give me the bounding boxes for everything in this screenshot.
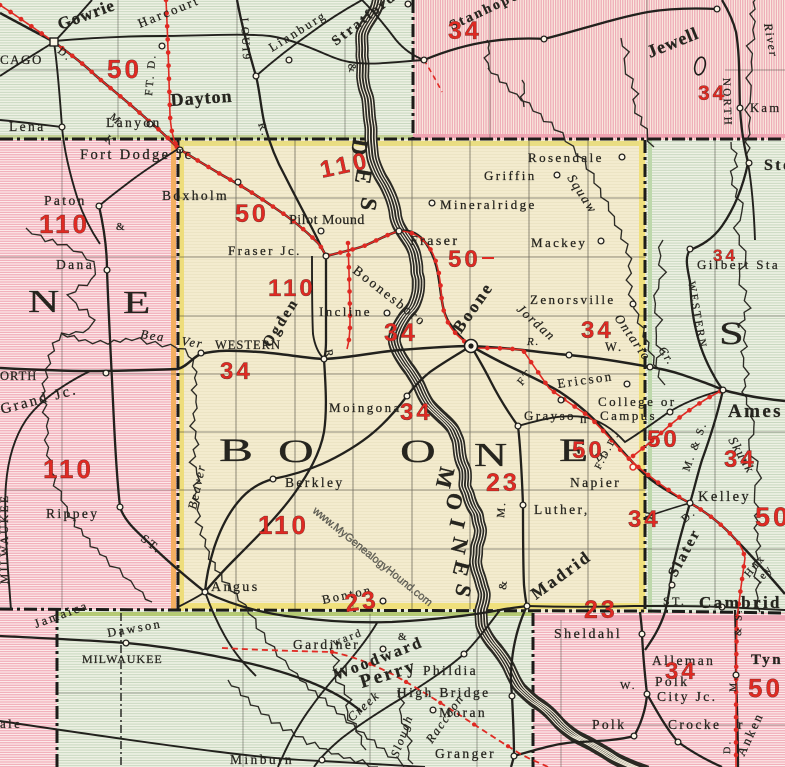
svg-text:Mineralridge: Mineralridge	[440, 197, 537, 212]
svg-text:W.: W.	[620, 680, 637, 692]
svg-text:R.: R.	[526, 336, 540, 348]
svg-text:110: 110	[43, 454, 94, 484]
svg-text:34: 34	[400, 399, 433, 426]
svg-text:Moingona: Moingona	[329, 400, 402, 415]
svg-text:Lena: Lena	[9, 119, 46, 134]
svg-text:34: 34	[698, 82, 727, 105]
svg-text:Sheldahl: Sheldahl	[554, 627, 622, 642]
svg-text:Gilbert Sta: Gilbert Sta	[697, 257, 780, 272]
svg-text:50: 50	[448, 246, 481, 273]
svg-text:N: N	[474, 436, 510, 474]
svg-text:50: 50	[755, 502, 785, 532]
svg-text:&: &	[497, 578, 510, 590]
svg-text:Luther,: Luther,	[534, 502, 590, 517]
svg-text:110: 110	[39, 209, 90, 239]
svg-text:Pilot Mound: Pilot Mound	[289, 213, 365, 228]
svg-text:ale: ale	[0, 716, 22, 731]
svg-text:&: &	[398, 631, 409, 643]
svg-text:Mackey: Mackey	[531, 235, 587, 250]
svg-text:B: B	[219, 433, 257, 469]
svg-text:MILWAUKEE: MILWAUKEE	[0, 494, 11, 584]
svg-text:Polk: Polk	[592, 717, 626, 732]
svg-text:N: N	[28, 284, 62, 319]
svg-text:34: 34	[665, 658, 698, 685]
svg-text:Paton: Paton	[44, 193, 87, 208]
svg-text:23: 23	[486, 469, 520, 497]
svg-text:23: 23	[584, 596, 618, 624]
svg-text:34: 34	[384, 319, 418, 347]
svg-text:Angus: Angus	[211, 580, 260, 595]
svg-text:Fraser Jc.: Fraser Jc.	[228, 243, 302, 258]
svg-text:50: 50	[647, 426, 680, 453]
svg-text:M.: M.	[728, 676, 740, 693]
svg-text:23: 23	[343, 586, 380, 618]
svg-text:M.: M.	[495, 500, 508, 518]
svg-text:110: 110	[258, 510, 309, 540]
svg-text:50: 50	[107, 54, 142, 84]
svg-text:High Bridge: High Bridge	[397, 685, 491, 700]
svg-text:Grayso: Grayso	[524, 408, 576, 423]
svg-text:Fort Dodge Jc: Fort Dodge Jc	[80, 147, 193, 163]
svg-text:Griffin: Griffin	[484, 168, 537, 183]
svg-text:WESTERN: WESTERN	[215, 338, 281, 352]
svg-text:O: O	[400, 434, 439, 470]
svg-text:34: 34	[581, 317, 614, 344]
svg-text:Ames: Ames	[728, 401, 783, 422]
svg-text:Zenorsville: Zenorsville	[530, 292, 616, 307]
svg-text:n: n	[580, 411, 589, 426]
svg-text:Boxholm: Boxholm	[162, 188, 229, 203]
svg-text:S: S	[719, 315, 747, 351]
svg-text:ST.: ST.	[663, 594, 686, 608]
svg-text:Napier: Napier	[570, 475, 621, 490]
svg-text:50: 50	[748, 673, 783, 703]
svg-text:Crocke: Crocke	[668, 717, 721, 732]
svg-text:Kam: Kam	[750, 101, 782, 115]
svg-text:Rosendale: Rosendale	[528, 150, 604, 165]
svg-text:&: &	[345, 62, 359, 75]
svg-text:Sto: Sto	[764, 157, 785, 174]
svg-text:110: 110	[268, 275, 316, 302]
svg-text:O: O	[278, 434, 317, 470]
svg-text:Minburn: Minburn	[230, 752, 294, 767]
svg-text:Berkley: Berkley	[285, 475, 345, 490]
svg-text:City Jc.: City Jc.	[657, 689, 717, 704]
svg-text:E: E	[123, 285, 154, 320]
svg-text:Kelley: Kelley	[698, 489, 751, 505]
svg-text:50: 50	[572, 437, 605, 464]
svg-text:Dana: Dana	[56, 257, 94, 272]
svg-text:34: 34	[220, 358, 253, 385]
svg-text:Tyn: Tyn	[751, 652, 783, 668]
svg-text:Phildia: Phildia	[423, 663, 478, 678]
svg-text:Rippey: Rippey	[46, 506, 99, 521]
svg-text:Incline: Incline	[319, 304, 372, 319]
svg-text:34: 34	[724, 446, 757, 473]
svg-text:ORTH: ORTH	[0, 369, 37, 383]
svg-text:LOUI9: LOUI9	[238, 18, 252, 62]
svg-text:Granger: Granger	[435, 746, 496, 761]
svg-text:34: 34	[628, 506, 661, 533]
svg-text:Campus: Campus	[600, 408, 657, 423]
svg-text:50: 50	[235, 200, 269, 228]
svg-text:College or: College or	[598, 394, 677, 409]
svg-text:34: 34	[448, 17, 482, 45]
svg-text:MILWAUKEE: MILWAUKEE	[82, 652, 163, 666]
svg-text:& S.: & S.	[733, 608, 745, 636]
svg-text:CAGO: CAGO	[0, 52, 43, 67]
svg-text:D.: D.	[722, 739, 734, 754]
svg-text:&: &	[116, 221, 127, 233]
svg-text:34: 34	[713, 246, 738, 265]
